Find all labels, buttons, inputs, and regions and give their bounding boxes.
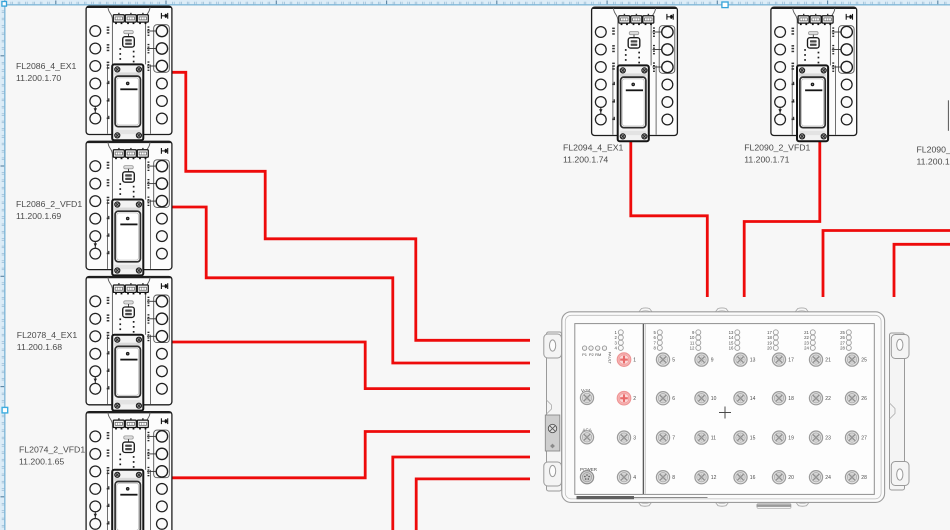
svg-text:FL2078_4_EX1: FL2078_4_EX1 xyxy=(17,330,78,340)
svg-text:FL2074_2_VFD1: FL2074_2_VFD1 xyxy=(19,445,85,455)
svg-text:28: 28 xyxy=(861,475,867,481)
svg-text:6: 6 xyxy=(672,396,675,402)
svg-text:8: 8 xyxy=(672,475,675,481)
svg-text:11.200.1.68: 11.200.1.68 xyxy=(17,342,62,352)
svg-text:11: 11 xyxy=(711,435,716,441)
svg-text:23: 23 xyxy=(825,435,831,441)
svg-text:24: 24 xyxy=(825,475,831,481)
svg-text:18: 18 xyxy=(788,396,794,402)
svg-text:16: 16 xyxy=(729,346,734,351)
svg-text:11.200.1.74: 11.200.1.74 xyxy=(563,155,608,165)
svg-text:FL2090_4_EX1: FL2090_4_EX1 xyxy=(917,145,950,155)
svg-text:P2: P2 xyxy=(589,352,595,357)
svg-text:11.200.1.70: 11.200.1.70 xyxy=(16,73,61,83)
svg-text:21: 21 xyxy=(825,357,831,363)
svg-text:11.200.1.69: 11.200.1.69 xyxy=(16,211,61,221)
svg-text:14: 14 xyxy=(750,396,756,402)
svg-text:13: 13 xyxy=(750,357,756,363)
svg-text:11.200.1.72: 11.200.1.72 xyxy=(917,157,950,167)
svg-text:9: 9 xyxy=(711,357,714,363)
svg-text:25: 25 xyxy=(861,357,867,363)
svg-text:FL2086_2_VFD1: FL2086_2_VFD1 xyxy=(16,199,82,209)
svg-text:10: 10 xyxy=(711,396,717,402)
svg-text:2: 2 xyxy=(633,396,636,402)
svg-text:15: 15 xyxy=(750,435,756,441)
svg-text:P1: P1 xyxy=(582,352,588,357)
svg-text:11.200.1.65: 11.200.1.65 xyxy=(19,457,64,467)
svg-text:20: 20 xyxy=(767,346,772,351)
svg-text:27: 27 xyxy=(861,435,867,441)
svg-text:1: 1 xyxy=(633,357,636,363)
svg-text:FAULT: FAULT xyxy=(607,352,612,365)
svg-text:19: 19 xyxy=(788,435,794,441)
svg-text:22: 22 xyxy=(825,396,831,402)
svg-text:FL2090_2_VFD1: FL2090_2_VFD1 xyxy=(744,143,810,153)
svg-text:17: 17 xyxy=(788,357,794,363)
svg-text:20: 20 xyxy=(788,475,794,481)
svg-text:5: 5 xyxy=(672,357,675,363)
svg-text:FL2094_4_EX1: FL2094_4_EX1 xyxy=(563,143,624,153)
svg-text:RM: RM xyxy=(595,352,601,357)
svg-text:28: 28 xyxy=(840,346,845,351)
svg-text:4: 4 xyxy=(633,475,636,481)
svg-text:7: 7 xyxy=(672,435,675,441)
svg-text:12: 12 xyxy=(711,475,717,481)
svg-text:FL2086_4_EX1: FL2086_4_EX1 xyxy=(16,61,77,71)
svg-text:12: 12 xyxy=(690,346,695,351)
svg-text:11.200.1.71: 11.200.1.71 xyxy=(744,155,789,165)
svg-text:3: 3 xyxy=(633,435,636,441)
svg-text:26: 26 xyxy=(861,396,867,402)
svg-text:16: 16 xyxy=(750,475,756,481)
svg-text:24: 24 xyxy=(804,346,809,351)
